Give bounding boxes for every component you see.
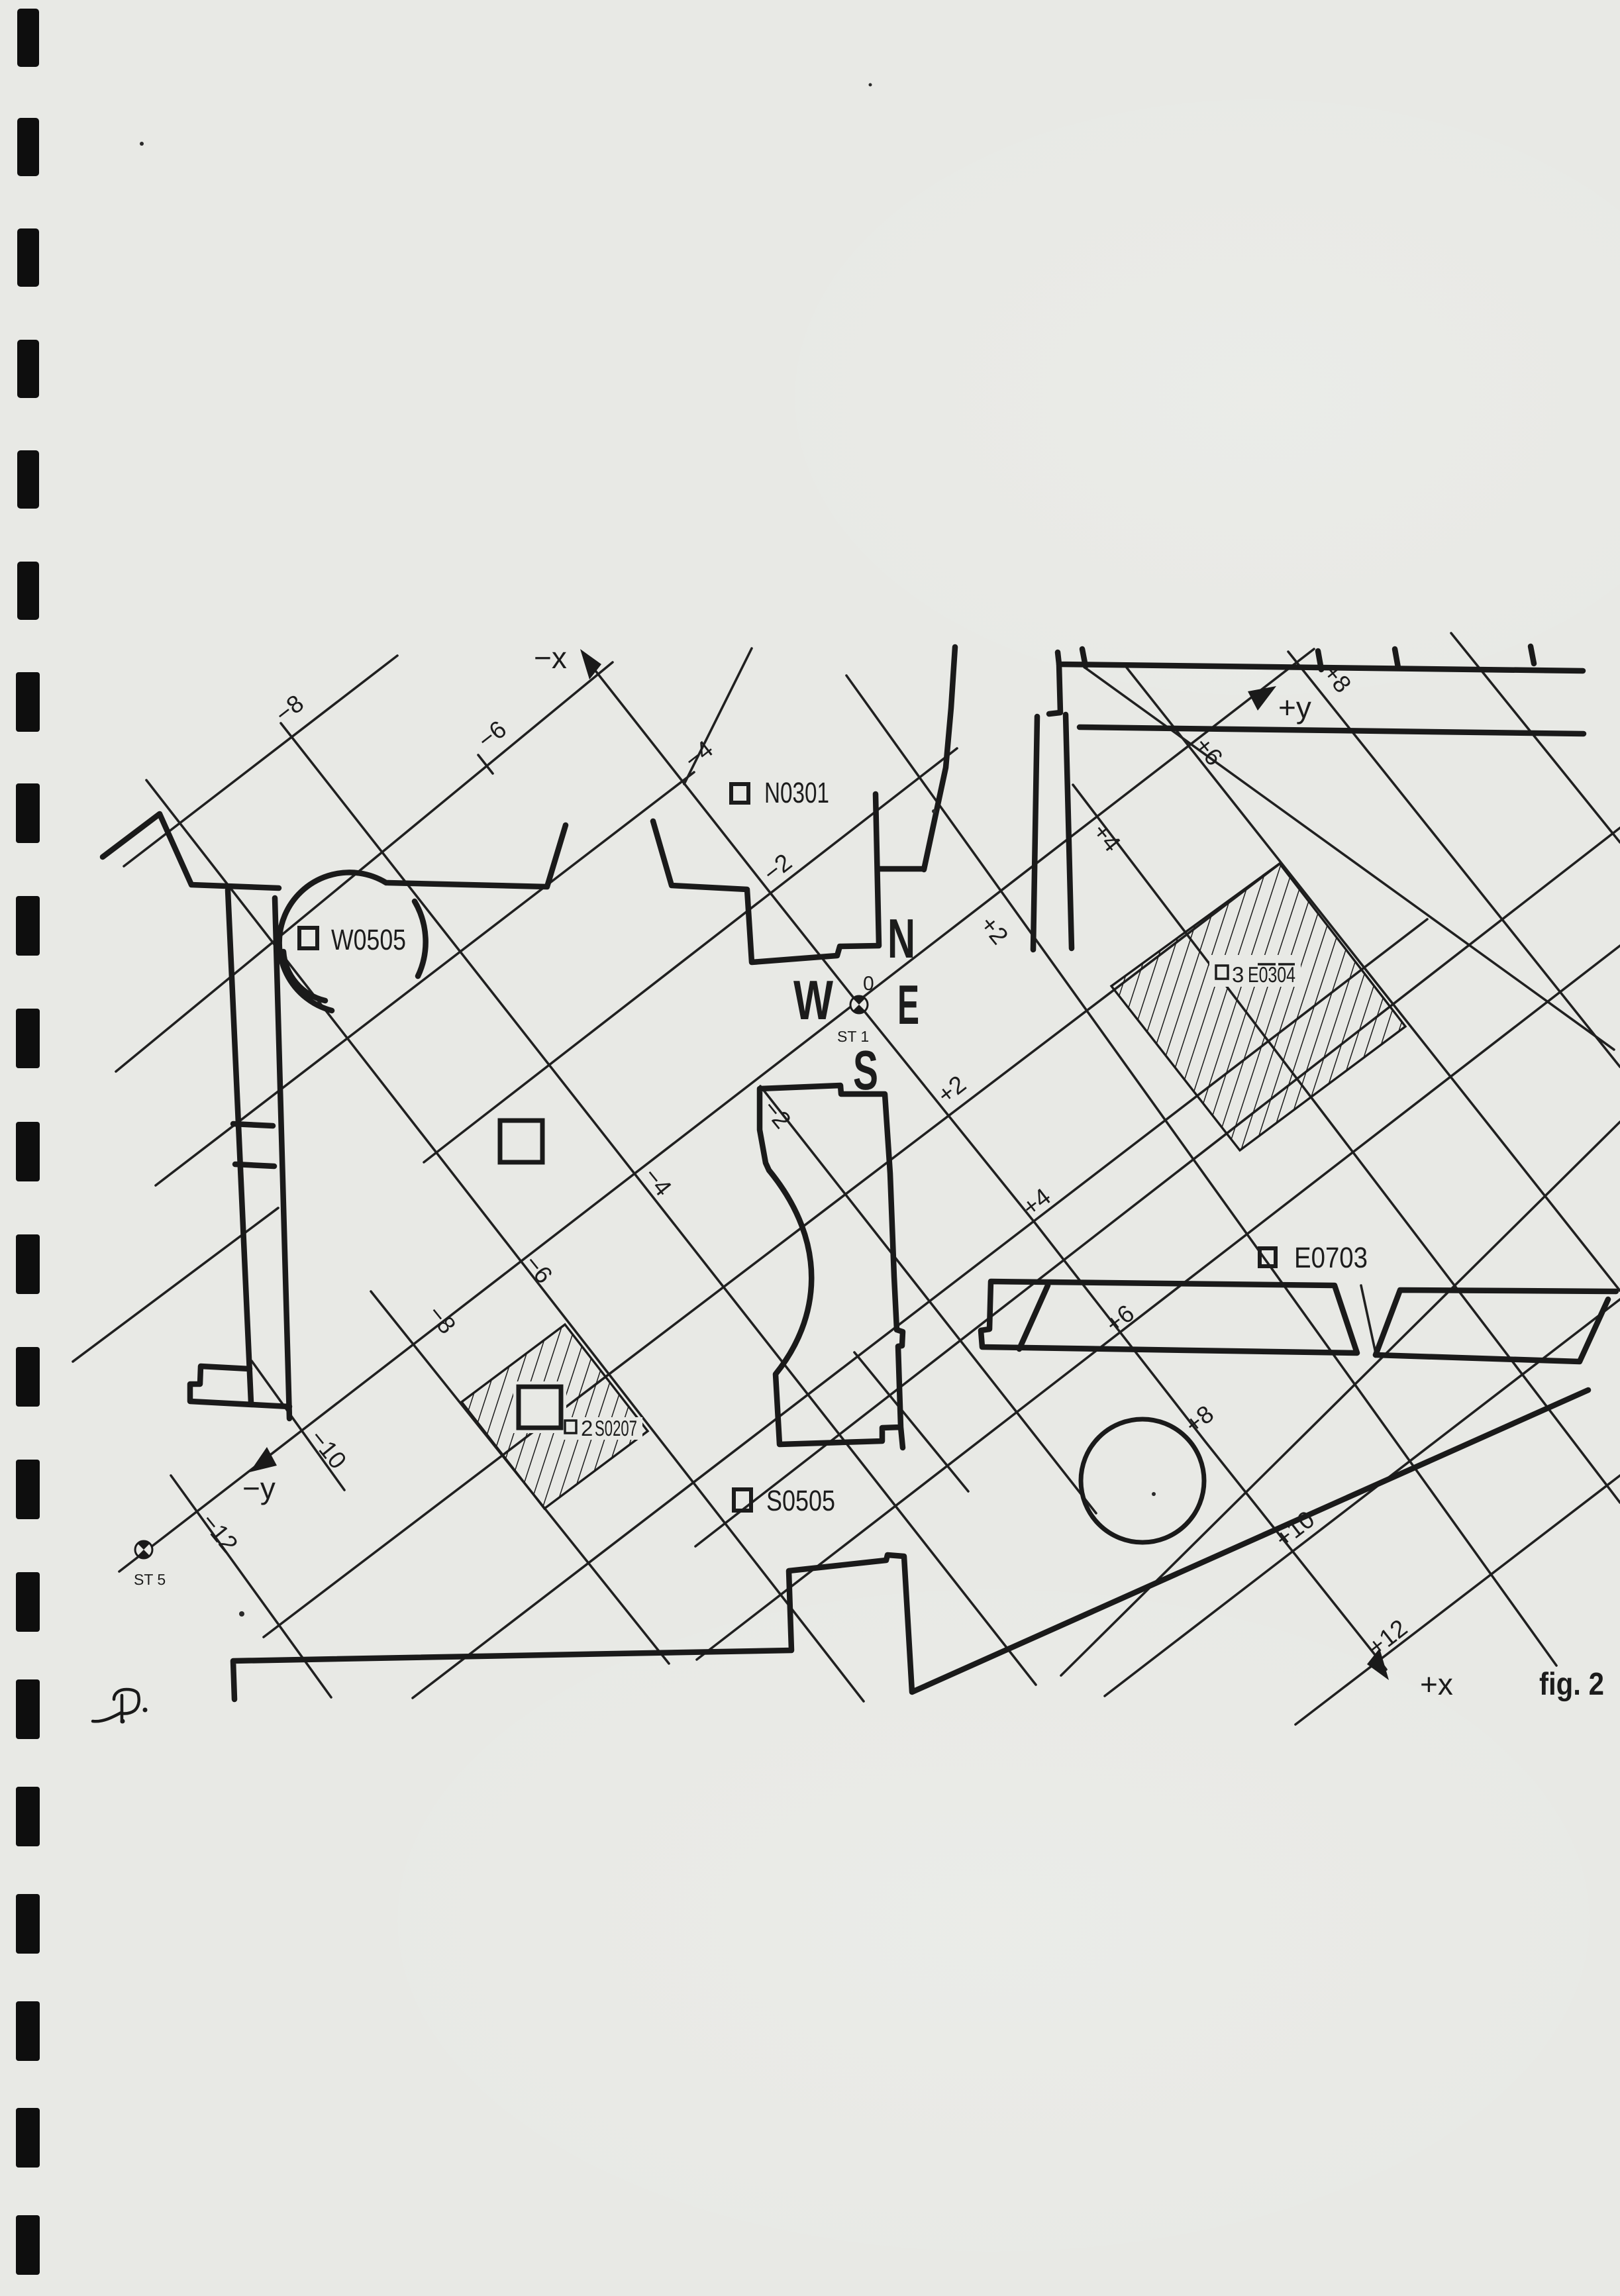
svg-text:ST 5: ST 5 [134, 1571, 166, 1588]
svg-text:W: W [793, 969, 834, 1031]
svg-text:fig. 2: fig. 2 [1539, 1667, 1604, 1702]
svg-text:S: S [853, 1039, 878, 1101]
svg-text:E0703: E0703 [1294, 1242, 1368, 1274]
svg-text:−y: −y [242, 1471, 276, 1505]
svg-text:S0207: S0207 [595, 1416, 637, 1440]
svg-text:E: E [897, 973, 919, 1036]
svg-text:S0505: S0505 [766, 1485, 835, 1517]
svg-text:+x: +x [1420, 1667, 1453, 1701]
svg-text:E0304: E0304 [1248, 962, 1295, 987]
svg-text:ST 1: ST 1 [837, 1028, 869, 1045]
svg-text:+y: +y [1278, 690, 1311, 724]
svg-text:W0505: W0505 [331, 924, 406, 956]
svg-text:0: 0 [863, 973, 874, 995]
svg-text:N: N [887, 907, 915, 970]
svg-text:3: 3 [1232, 962, 1244, 987]
svg-text:2: 2 [581, 1416, 593, 1440]
svg-text:N0301: N0301 [764, 777, 829, 809]
svg-text:−x: −x [534, 640, 567, 675]
